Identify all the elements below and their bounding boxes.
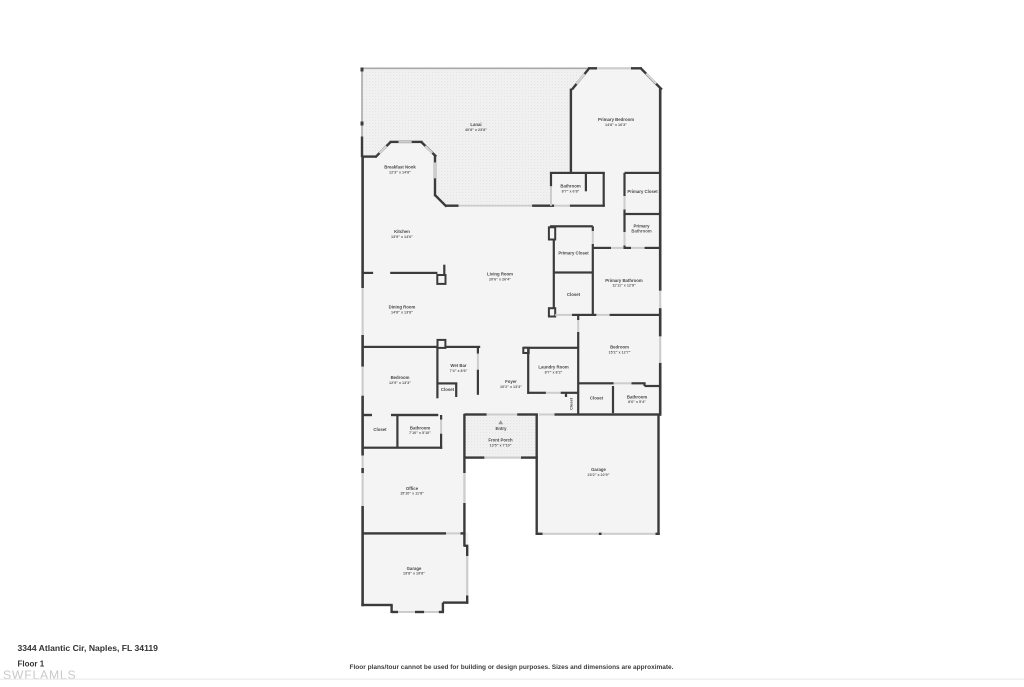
svg-text:15’2" x 12’7": 15’2" x 12’7" (609, 350, 631, 354)
svg-text:Primary Bedroom: Primary Bedroom (598, 117, 634, 122)
svg-text:7’4" x 8’6": 7’4" x 8’6" (450, 369, 468, 373)
svg-text:11’11" x 12’8": 11’11" x 12’8" (612, 284, 636, 288)
svg-text:Wet Bar: Wet Bar (450, 363, 466, 368)
svg-text:12’9" x 13’3": 12’9" x 13’3" (389, 381, 411, 385)
svg-text:Primary Bathroom: Primary Bathroom (605, 278, 643, 283)
svg-text:8’6" x 5’4": 8’6" x 5’4" (628, 400, 646, 404)
svg-text:Office: Office (406, 486, 419, 491)
svg-text:Closet: Closet (373, 427, 387, 432)
svg-text:Garage: Garage (591, 467, 606, 472)
svg-text:Closet: Closet (567, 292, 581, 297)
svg-text:Floor plans/tour cannot be use: Floor plans/tour cannot be used for buil… (350, 664, 674, 671)
svg-text:Primary Closet: Primary Closet (558, 251, 589, 256)
svg-text:Garage: Garage (407, 566, 422, 571)
svg-text:8’7" x 6’8": 8’7" x 6’8" (562, 189, 580, 193)
svg-text:Bedroom: Bedroom (391, 375, 410, 380)
svg-text:Kitchen: Kitchen (394, 229, 410, 234)
svg-text:13’9" x 14’6": 13’9" x 14’6" (391, 235, 413, 239)
svg-text:14’8" x 16’3": 14’8" x 16’3" (605, 123, 627, 127)
svg-text:Bathroom: Bathroom (410, 425, 430, 430)
svg-text:Foyer: Foyer (505, 379, 517, 384)
svg-text:Closet: Closet (441, 387, 455, 392)
svg-text:23’2" x 22’9": 23’2" x 22’9" (588, 473, 610, 477)
svg-text:Lanai: Lanai (470, 122, 481, 127)
svg-text:Bathroom: Bathroom (627, 394, 647, 399)
svg-text:Living Room: Living Room (487, 272, 513, 277)
svg-text:40’8" x 23’8": 40’8" x 23’8" (465, 128, 487, 132)
svg-text:Breakfast Nook: Breakfast Nook (384, 165, 416, 170)
svg-text:Closet: Closet (569, 397, 574, 410)
svg-text:20’6" x 26’4": 20’6" x 26’4" (489, 277, 511, 281)
svg-text:Bedroom: Bedroom (610, 345, 629, 350)
svg-text:Entry: Entry (496, 426, 508, 431)
svg-text:15’10" x 11’8": 15’10" x 11’8" (400, 492, 424, 496)
svg-text:SWFLAMLS: SWFLAMLS (3, 668, 76, 682)
svg-text:8’7" x 8’2": 8’7" x 8’2" (545, 371, 563, 375)
svg-text:Dining Room: Dining Room (389, 305, 416, 310)
svg-text:7’10" x 5’10": 7’10" x 5’10" (409, 431, 431, 435)
svg-text:19’8" x 19’8": 19’8" x 19’8" (403, 572, 425, 576)
svg-text:Bathroom: Bathroom (560, 184, 580, 189)
svg-text:Closet: Closet (590, 396, 604, 401)
svg-text:13’5" x 7’10": 13’5" x 7’10" (490, 443, 512, 447)
svg-text:Front Porch: Front Porch (488, 438, 513, 443)
svg-text:14’8" x 13’8": 14’8" x 13’8" (391, 310, 413, 314)
svg-text:12’3" x 14’8": 12’3" x 14’8" (389, 170, 411, 174)
svg-text:Bathroom: Bathroom (631, 228, 651, 233)
svg-text:3344 Atlantic Cir, Naples, FL: 3344 Atlantic Cir, Naples, FL 34119 (18, 643, 159, 653)
svg-text:10’2" x 13’3": 10’2" x 13’3" (500, 385, 522, 389)
svg-text:Primary Closet: Primary Closet (627, 189, 658, 194)
svg-text:Laundry Room: Laundry Room (538, 365, 568, 370)
